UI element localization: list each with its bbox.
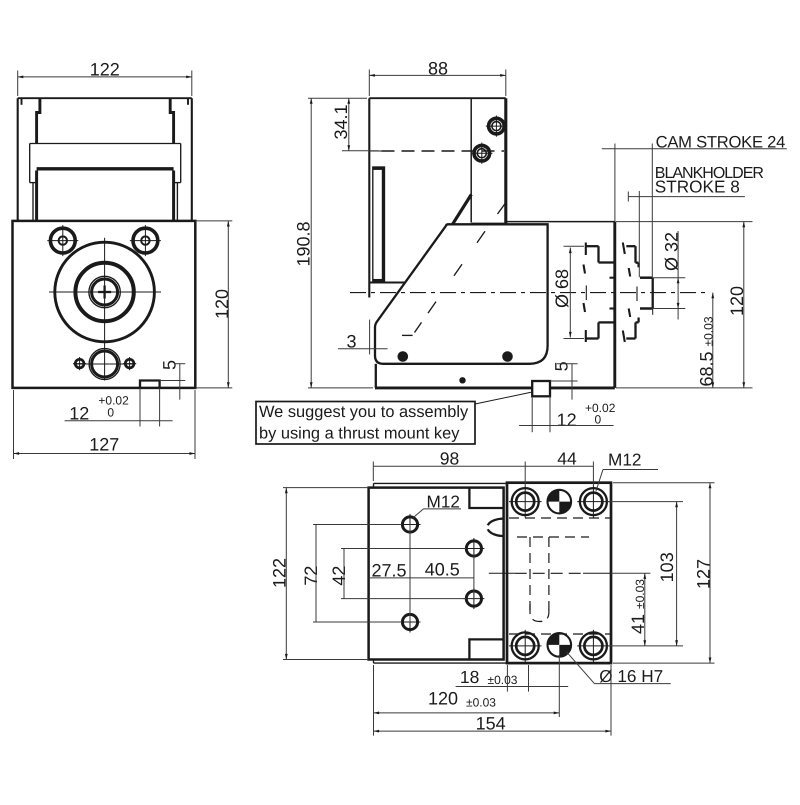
svg-text:40.5: 40.5 [425, 559, 460, 579]
svg-text:±0.03: ±0.03 [488, 673, 518, 687]
svg-text:±0.03: ±0.03 [466, 696, 496, 710]
svg-text:120: 120 [428, 689, 458, 709]
svg-text:STROKE 8: STROKE 8 [655, 177, 740, 197]
svg-text:190.8: 190.8 [294, 221, 314, 266]
svg-text:42: 42 [329, 566, 349, 586]
svg-text:44: 44 [557, 448, 577, 468]
svg-text:154: 154 [476, 714, 506, 734]
svg-text:127: 127 [89, 435, 119, 455]
svg-text:5: 5 [551, 361, 571, 371]
svg-text:by using a thrust mount key: by using a thrust mount key [259, 424, 460, 442]
svg-text:5: 5 [160, 360, 180, 370]
svg-text:120: 120 [212, 289, 232, 319]
svg-text:72: 72 [301, 566, 321, 586]
svg-text:34.1: 34.1 [331, 104, 351, 139]
svg-text:18: 18 [460, 667, 479, 687]
svg-text:Ø 68: Ø 68 [552, 269, 572, 308]
svg-text:12: 12 [557, 410, 577, 430]
svg-text:We suggest you to assembly: We suggest you to assembly [259, 403, 469, 421]
svg-text:27.5: 27.5 [371, 560, 406, 580]
svg-text:Ø 16 H7: Ø 16 H7 [599, 666, 663, 686]
svg-text:0: 0 [107, 406, 114, 420]
svg-text:0: 0 [595, 413, 602, 427]
svg-text:M12: M12 [608, 450, 641, 470]
svg-text:98: 98 [440, 448, 459, 468]
svg-text:127: 127 [694, 559, 714, 589]
svg-text:103: 103 [657, 552, 677, 582]
svg-text:122: 122 [90, 59, 120, 79]
